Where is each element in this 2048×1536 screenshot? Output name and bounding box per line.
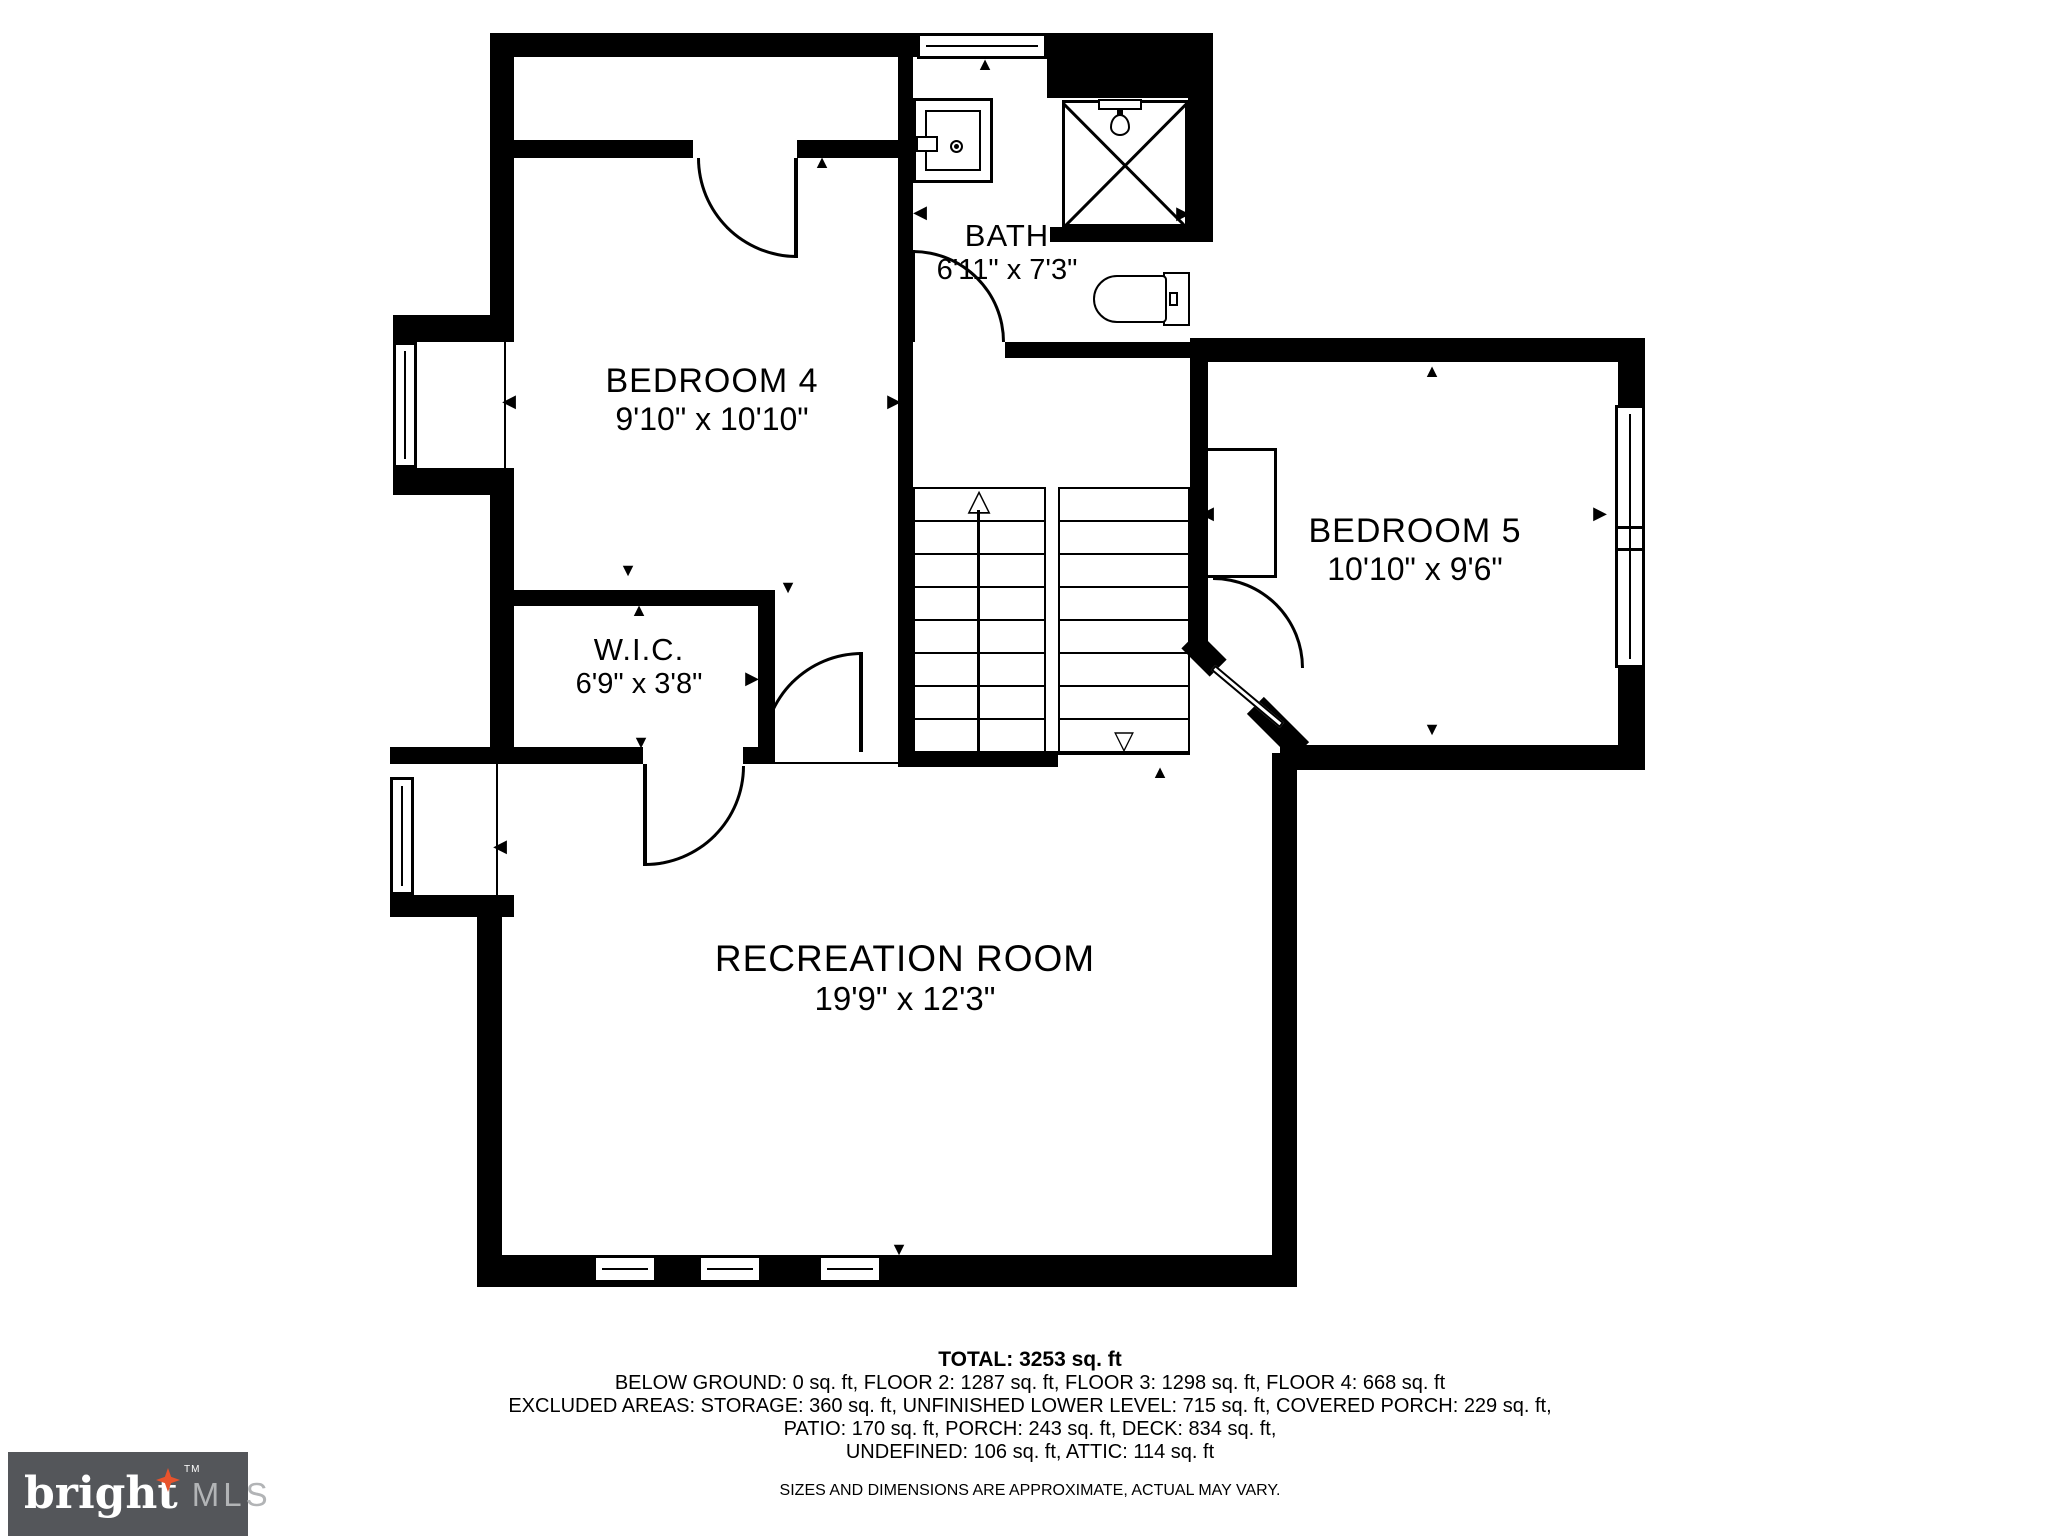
window — [698, 1255, 762, 1283]
dimension-marker-icon: ▲ — [1151, 763, 1169, 781]
logo-suffix-text: MLS — [192, 1478, 272, 1511]
dimension-marker-icon: ▼ — [779, 578, 797, 596]
summary-excluded-3: UNDEFINED: 106 sq. ft, ATTIC: 114 sq. ft — [114, 1441, 1946, 1464]
sink-drain-dot — [954, 144, 959, 149]
dimension-marker-icon: ▶ — [1593, 504, 1607, 522]
dimension-marker-icon: ◀ — [913, 203, 927, 221]
window-divider — [1618, 548, 1642, 551]
opening-line — [496, 764, 498, 895]
wall — [1005, 342, 1200, 358]
toilet-flush-button — [1169, 292, 1178, 306]
stairs-down-arrow-icon: ▽ — [1114, 727, 1134, 753]
room-name: BEDROOM 4 — [512, 362, 912, 401]
window — [593, 1255, 657, 1283]
wall — [490, 495, 514, 764]
dimension-marker-icon: ▲ — [813, 153, 831, 171]
room-dimensions: 19'9" x 12'3" — [655, 980, 1155, 1018]
staircase-down-run — [1058, 487, 1190, 755]
dimension-marker-icon: ▶ — [887, 392, 901, 410]
dimension-marker-icon: ▶ — [1176, 204, 1190, 222]
room-dimensions: 9'10" x 10'10" — [512, 401, 912, 438]
area-summary: TOTAL: 3253 sq. ft BELOW GROUND: 0 sq. f… — [114, 1348, 1946, 1464]
wall — [514, 140, 693, 158]
door-leaf — [1211, 665, 1284, 728]
stairs-direction-line — [977, 510, 980, 753]
shower-head-bulb — [1110, 114, 1130, 136]
room-label-recreation: RECREATION ROOM 19'9" x 12'3" — [655, 938, 1155, 1018]
summary-total: TOTAL: 3253 sq. ft — [114, 1348, 1946, 1372]
dimension-marker-icon: ▼ — [619, 561, 637, 579]
wall — [1272, 753, 1297, 1287]
room-dimensions: 6'9" x 3'8" — [489, 668, 789, 701]
room-name: BEDROOM 5 — [1215, 512, 1615, 551]
wall — [490, 33, 514, 315]
window — [818, 1255, 882, 1283]
window — [393, 342, 417, 468]
dimension-marker-icon: ▲ — [1423, 362, 1441, 380]
wall — [393, 315, 514, 342]
dimension-marker-icon: ▶ — [1279, 838, 1293, 856]
wall — [477, 895, 502, 1287]
threshold-line — [762, 762, 898, 764]
dimension-marker-icon: ◀ — [502, 392, 516, 410]
wall — [1618, 338, 1645, 408]
room-name: W.I.C. — [489, 632, 789, 668]
room-label-bath: BATH 6'11" x 7'3" — [857, 218, 1157, 287]
dimension-marker-icon: ▲ — [630, 601, 648, 619]
door-arc — [697, 158, 797, 258]
dimension-marker-icon: ◀ — [495, 669, 509, 687]
room-dimensions: 6'11" x 7'3" — [857, 254, 1157, 287]
room-label-bedroom5: BEDROOM 5 10'10" x 9'6" — [1215, 512, 1615, 588]
door-arc — [645, 766, 745, 866]
summary-floors: BELOW GROUND: 0 sq. ft, FLOOR 2: 1287 sq… — [114, 1372, 1946, 1395]
stairs-up-arrow-icon: △ — [967, 486, 990, 516]
room-label-bedroom4: BEDROOM 4 9'10" x 10'10" — [512, 362, 912, 438]
disclaimer-text: SIZES AND DIMENSIONS ARE APPROXIMATE, AC… — [114, 1482, 1946, 1500]
dimension-marker-icon: ◀ — [493, 837, 507, 855]
wall — [1280, 745, 1645, 770]
dimension-marker-icon: ▶ — [745, 669, 759, 687]
wall — [1188, 57, 1213, 242]
dimension-marker-icon: ▼ — [890, 1240, 908, 1258]
logo-brand-text: bright — [24, 1472, 178, 1516]
window — [390, 777, 414, 895]
bright-mls-logo: bright TM MLS — [8, 1452, 248, 1536]
summary-excluded-1: EXCLUDED AREAS: STORAGE: 360 sq. ft, UNF… — [114, 1395, 1946, 1418]
room-dimensions: 10'10" x 9'6" — [1215, 551, 1615, 588]
wall — [390, 747, 643, 764]
dimension-marker-icon: ◀ — [1200, 504, 1214, 522]
wall — [905, 751, 1058, 767]
dimension-marker-icon: ▲ — [976, 55, 994, 73]
wall — [1200, 338, 1645, 362]
door-arc — [1213, 577, 1304, 668]
wall — [490, 33, 917, 57]
dimension-marker-icon: ▼ — [632, 733, 650, 751]
room-label-wic: W.I.C. 6'9" x 3'8" — [489, 632, 789, 701]
wall — [393, 468, 514, 495]
sink-faucet — [916, 136, 938, 152]
window-divider — [1618, 526, 1642, 529]
floor-plan: △ ▽ BEDROOM 4 9'10" x 10'10" BATH 6'11" … — [0, 0, 2048, 1536]
summary-excluded-2: PATIO: 170 sq. ft, PORCH: 243 sq. ft, DE… — [114, 1418, 1946, 1441]
room-name: BATH — [857, 218, 1157, 254]
logo-trademark: TM — [184, 1464, 200, 1475]
room-name: RECREATION ROOM — [655, 938, 1155, 980]
dimension-marker-icon: ▼ — [1423, 720, 1441, 738]
window — [1615, 405, 1645, 668]
